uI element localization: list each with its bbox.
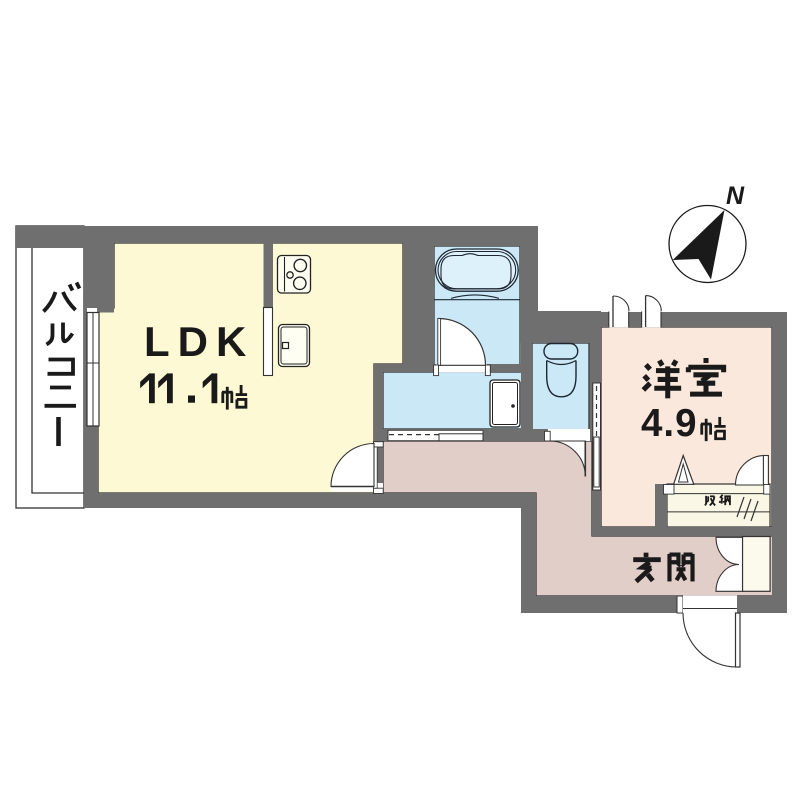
- svg-text:LDK: LDK: [144, 318, 254, 365]
- svg-text:N: N: [726, 182, 745, 210]
- svg-text:4.9: 4.9: [641, 402, 698, 445]
